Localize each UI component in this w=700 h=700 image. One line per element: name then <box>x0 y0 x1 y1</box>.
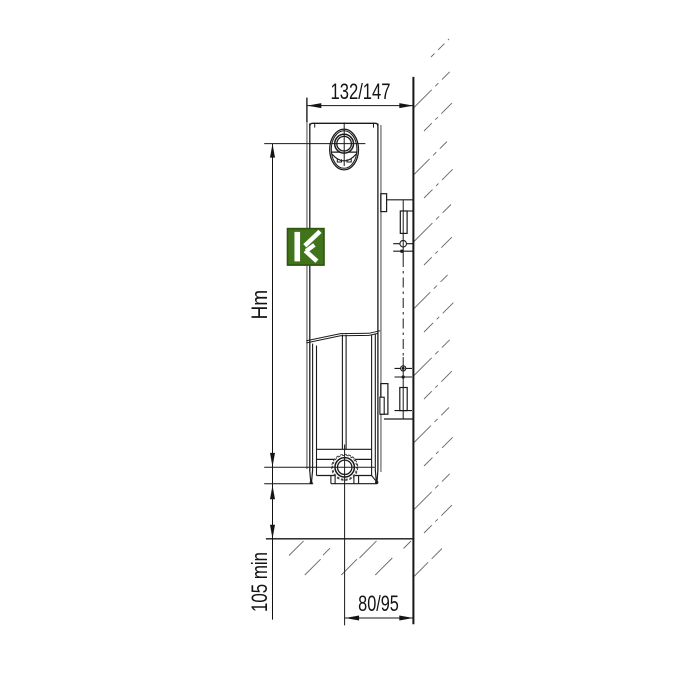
svg-text:Hm: Hm <box>248 290 273 320</box>
svg-text:105 min: 105 min <box>248 552 273 612</box>
svg-text:80/95: 80/95 <box>358 592 399 617</box>
svg-text:132/147: 132/147 <box>330 80 390 105</box>
